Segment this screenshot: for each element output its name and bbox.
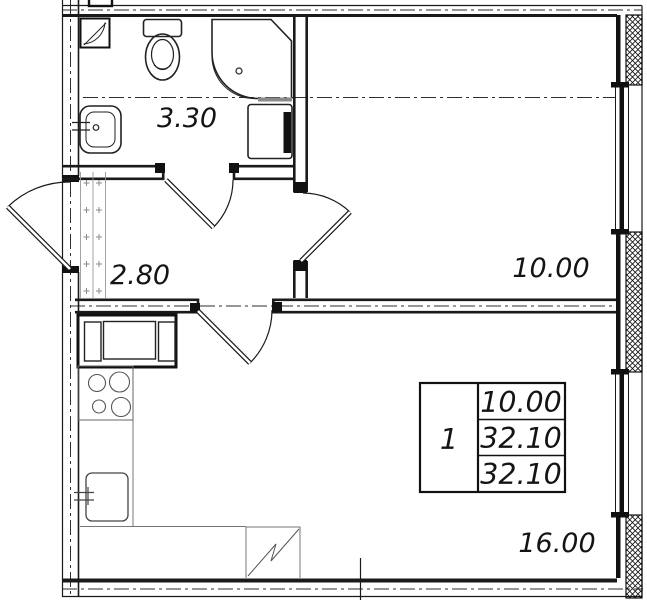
living-area-value: 10.00 bbox=[480, 386, 562, 419]
bathroom-area-label: 3.30 bbox=[157, 103, 217, 134]
vent-stack-marker bbox=[89, 0, 112, 6]
bathroom-door bbox=[166, 180, 233, 227]
doors bbox=[8, 180, 350, 363]
floor-plan-drawing: 1 10.00 32.10 32.10 3.30 2.80 10.00 16.0… bbox=[0, 0, 647, 600]
window-kitchen-living bbox=[611, 369, 629, 518]
kitchen-fixtures bbox=[74, 315, 300, 578]
rooms-count-value: 1 bbox=[440, 423, 458, 456]
shower-cabin-icon bbox=[212, 20, 292, 100]
toilet-icon bbox=[144, 20, 182, 81]
vent-shaft-icon bbox=[81, 19, 110, 48]
room-area-label: 10.00 bbox=[512, 253, 589, 284]
area-table: 1 10.00 32.10 32.10 bbox=[420, 383, 565, 492]
kitchen-sink-icon bbox=[74, 473, 128, 521]
window-room bbox=[611, 82, 629, 235]
wall-bathroom-hallway bbox=[62, 163, 293, 180]
total-area-value: 32.10 bbox=[480, 422, 562, 455]
stove-icon bbox=[78, 366, 133, 420]
hallway-area-label: 2.80 bbox=[110, 260, 170, 291]
counter-break-symbol bbox=[246, 527, 300, 578]
bathroom-sink-icon bbox=[72, 106, 121, 153]
kitchen-living-area-label: 16.00 bbox=[518, 528, 595, 559]
floor-plan: 1 10.00 32.10 32.10 3.30 2.80 10.00 16.0… bbox=[0, 0, 647, 600]
room-door bbox=[301, 193, 350, 261]
bathroom-fixtures bbox=[72, 19, 292, 159]
washing-machine-icon bbox=[248, 105, 292, 159]
overall-area-value: 32.10 bbox=[480, 458, 562, 491]
kitchen-door bbox=[198, 310, 272, 363]
hallway-strip bbox=[81, 172, 106, 298]
entrance-door bbox=[8, 182, 70, 269]
kitchen-unit-icon bbox=[78, 315, 176, 367]
